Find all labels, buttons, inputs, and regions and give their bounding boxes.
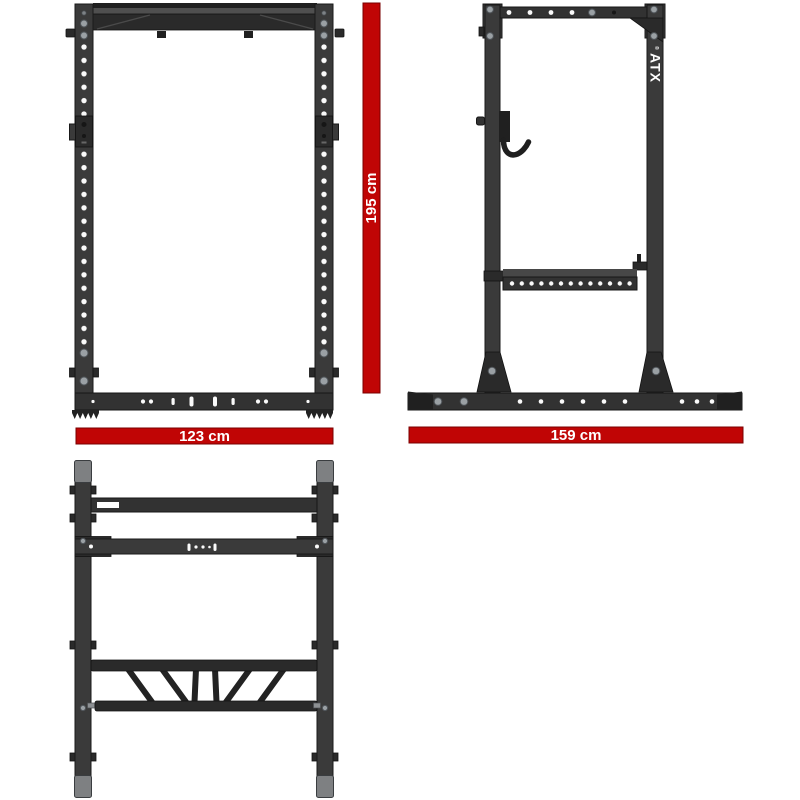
- multi-grip-bar: [88, 660, 321, 711]
- top-right-rail: [317, 481, 333, 777]
- side-base-gussets: [477, 352, 673, 392]
- front-top-crossmember: [93, 3, 317, 38]
- bolt-nub: [157, 31, 166, 38]
- top-view-lugs: [70, 486, 338, 761]
- front-feet: [72, 410, 333, 419]
- front-base-crossmember: [75, 393, 333, 410]
- front-bottom-bolts: [80, 349, 328, 385]
- top-left-rail: [75, 481, 91, 777]
- j-hook: [477, 111, 529, 155]
- top-second-crossbar: [75, 537, 333, 557]
- top-view: [70, 461, 338, 798]
- product-dimension-diagram: 195 cm ® ATX: [0, 0, 800, 800]
- right-upright-clamp: [316, 116, 339, 147]
- label-sticker: [97, 502, 119, 508]
- depth-dimension-label: 159 cm: [551, 427, 602, 444]
- front-bottom-tabs: [70, 368, 339, 377]
- top-rail-bolts: [80, 538, 327, 710]
- depth-dimension-bar: 159 cm: [409, 427, 743, 444]
- side-middle-rail: [484, 254, 647, 290]
- height-dimension-bar: 195 cm: [363, 3, 380, 393]
- bolt-nub: [244, 31, 253, 38]
- rack-diagram-svg: 195 cm ® ATX: [0, 0, 800, 800]
- brand-registered-mark: ®: [653, 46, 660, 50]
- side-front-upright: [485, 5, 500, 393]
- upright-hole-columns: [79, 41, 330, 346]
- brand-logo: ATX: [648, 53, 664, 83]
- height-dimension-label: 195 cm: [363, 173, 380, 224]
- side-top-crossmember: [500, 7, 663, 42]
- width-dimension-bar: 123 cm: [76, 428, 333, 445]
- top-rear-crossbar: [91, 498, 317, 512]
- front-view: [66, 3, 344, 419]
- width-dimension-label: 123 cm: [179, 428, 230, 445]
- side-view: ® ATX: [408, 4, 742, 410]
- side-base-rail: [408, 392, 742, 411]
- left-upright-clamp: [70, 116, 93, 147]
